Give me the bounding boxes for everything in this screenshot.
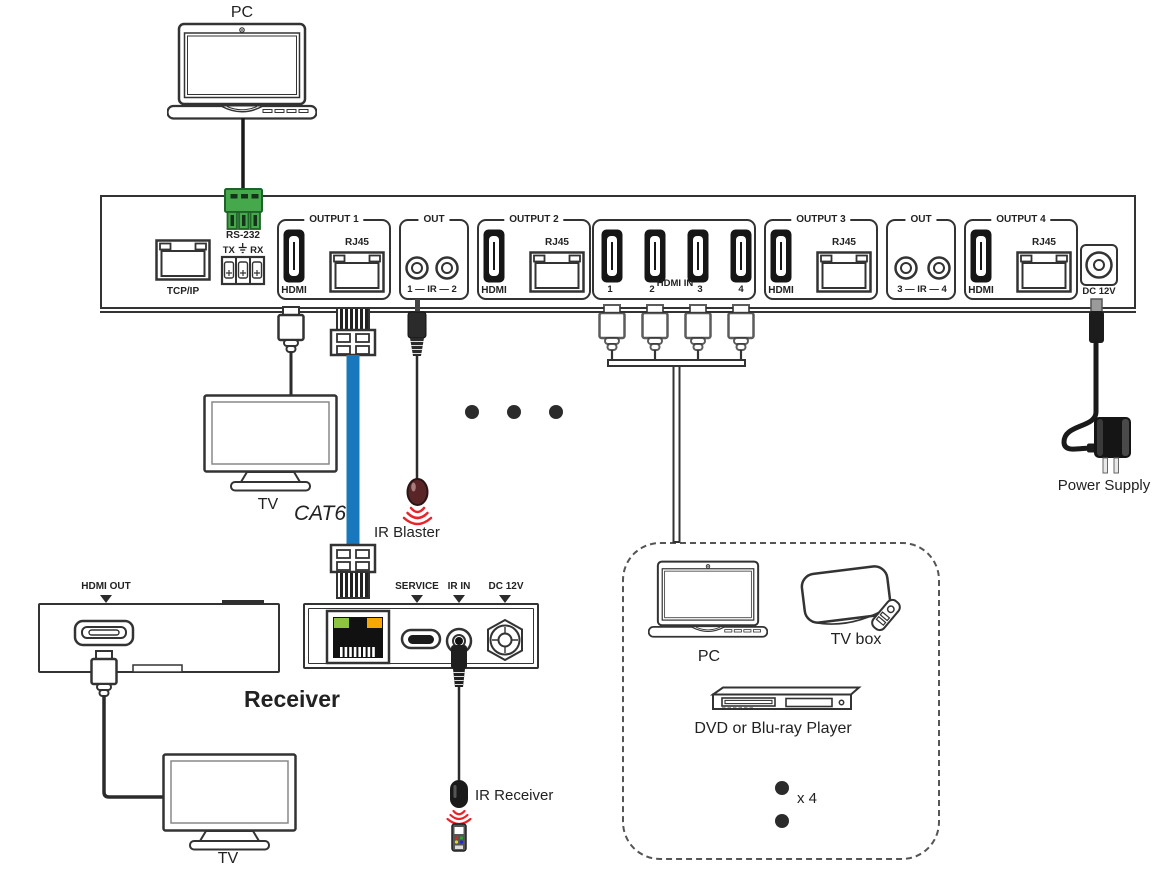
hdmi-in-harness [600, 305, 754, 542]
output1-group-label: OUTPUT 1 [304, 214, 363, 225]
cat6-label: CAT6 [294, 502, 346, 526]
hdmi-out-pointer-icon [100, 595, 112, 603]
tv-bottom [164, 755, 296, 850]
output2-rj45-label: RJ45 [545, 237, 569, 249]
ir-blaster [404, 299, 431, 524]
ir-receiver [448, 637, 471, 851]
matrix-bottom-edge [100, 311, 1136, 313]
rs232-label: RS-232 [226, 230, 260, 242]
power-supply [1064, 299, 1131, 473]
matrix-dc-label: DC 12V [1082, 287, 1115, 298]
remote-control [452, 824, 466, 851]
ir-out-34-group-label: OUT [905, 214, 936, 225]
ir-out-34-jacks-label: 3 — IR — 4 [897, 285, 947, 296]
pc-top-laptop [168, 24, 317, 190]
power-supply-label: Power Supply [1058, 477, 1151, 494]
cat6-link [331, 308, 375, 598]
hdmi-in-1-label: 1 [607, 285, 612, 296]
dvd-label: DVD or Blu-ray Player [694, 720, 851, 738]
ground-icon [237, 243, 247, 254]
tv-top-label: TV [258, 496, 278, 514]
ir-receiver-label: IR Receiver [475, 787, 553, 804]
hdmi-out-label: HDMI OUT [81, 581, 130, 593]
ir-waves-blaster [404, 508, 431, 524]
output1-rj45-label: RJ45 [345, 237, 369, 249]
service-pointer-icon [411, 595, 423, 603]
output3-group-label: OUTPUT 3 [791, 214, 850, 225]
receiver-front-panel [38, 603, 280, 673]
tcpip-label: TCP/IP [167, 286, 199, 298]
multiplier-label: x 4 [797, 790, 817, 807]
output4-group-label: OUTPUT 4 [991, 214, 1050, 225]
ir-in-pointer-icon [453, 595, 465, 603]
ellipsis-dots [465, 405, 563, 419]
hdmi-in-label: HDMI IN [657, 279, 693, 290]
tv-top [205, 396, 337, 491]
cat6-cable [347, 355, 360, 546]
rs232-pins-label: TX RX [223, 243, 264, 257]
ir-out-12-group-label: OUT [418, 214, 449, 225]
dc-pointer-icon [499, 595, 511, 603]
output4-hdmi-label: HDMI [968, 285, 994, 297]
receiver-title: Receiver [244, 686, 340, 712]
ir-blaster-label: IR Blaster [374, 524, 440, 541]
ir-in-label: IR IN [448, 581, 471, 593]
output3-rj45-label: RJ45 [832, 237, 856, 249]
receiver-back-panel [303, 603, 539, 669]
pc-source-label: PC [698, 648, 720, 666]
output3-hdmi-label: HDMI [768, 285, 794, 297]
tv-bottom-label: TV [218, 850, 238, 868]
output1-hdmi-label: HDMI [281, 285, 307, 297]
output4-rj45-label: RJ45 [1032, 237, 1056, 249]
output2-group-label: OUTPUT 2 [504, 214, 563, 225]
hdmi-in-2-label: 2 [649, 285, 654, 296]
sources-dashed-box [622, 542, 940, 860]
rs232-rx-label: RX [250, 245, 263, 256]
ir-out-12-jacks-label: 1 — IR — 2 [407, 285, 457, 296]
service-label: SERVICE [395, 581, 439, 593]
hdmi-in-4-label: 4 [738, 285, 743, 296]
rs232-tx-label: TX [223, 245, 235, 256]
hdmi-in-3-label: 3 [697, 285, 702, 296]
receiver-dc-label: DC 12V [488, 581, 523, 593]
tv-box-label: TV box [831, 631, 882, 649]
output1-hdmi-plug-and-tv [205, 307, 337, 491]
output2-hdmi-label: HDMI [481, 285, 507, 297]
connection-diagram: OUTPUT 1 OUT OUTPUT 2 OUTPUT 3 OUT OUTPU… [0, 0, 1169, 878]
receiver-back-inner-frame [308, 608, 534, 664]
ir-waves-receiver [448, 811, 471, 824]
diagram-artwork [0, 0, 1169, 878]
pc-top-label: PC [231, 4, 253, 22]
